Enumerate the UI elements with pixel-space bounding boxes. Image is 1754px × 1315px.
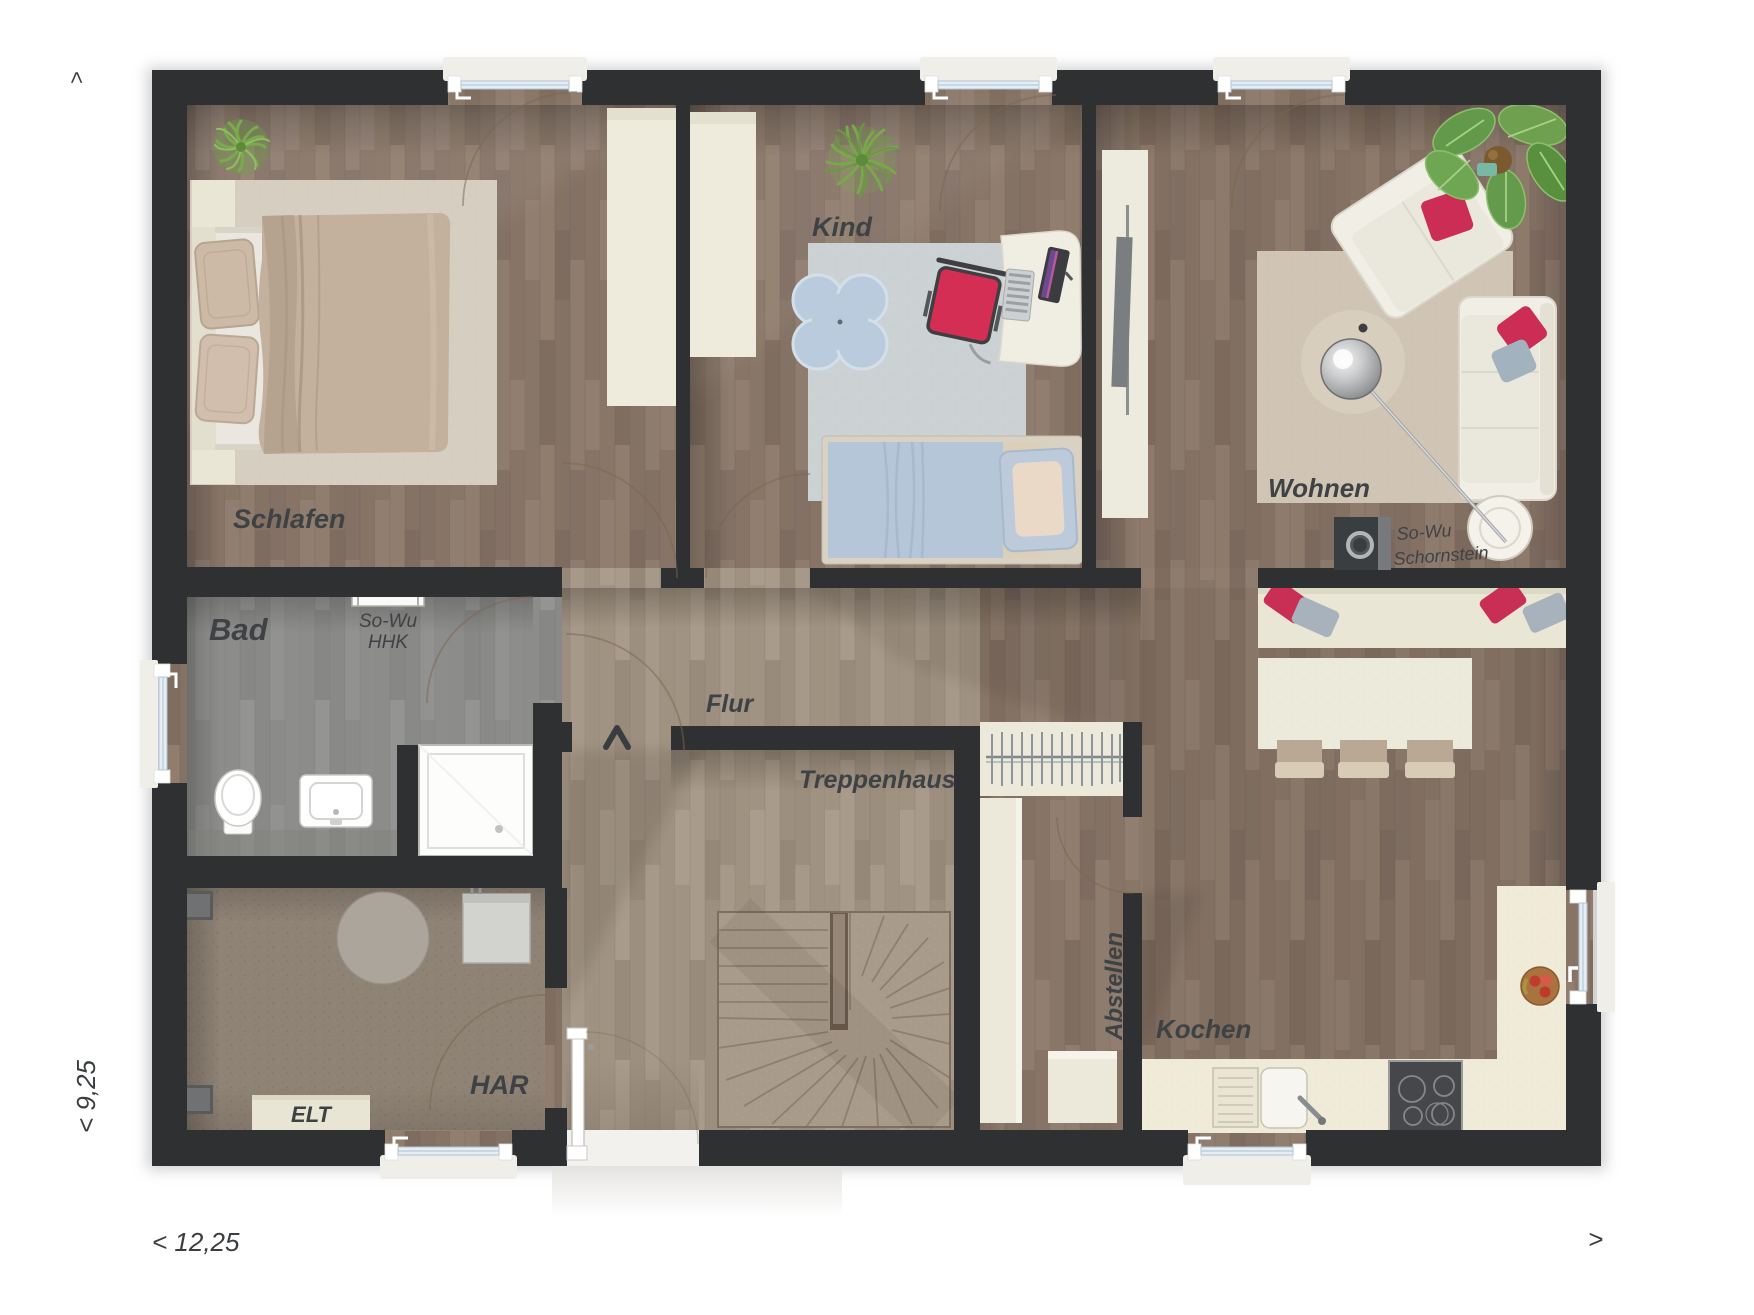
svg-text:Kind: Kind bbox=[812, 212, 872, 242]
svg-text:HAR: HAR bbox=[470, 1070, 529, 1100]
svg-text:< 12,25: < 12,25 bbox=[152, 1227, 240, 1257]
svg-text:Flur: Flur bbox=[706, 690, 754, 718]
svg-text:Abstellen: Abstellen bbox=[1101, 932, 1128, 1041]
svg-text:Schlafen: Schlafen bbox=[233, 504, 346, 534]
svg-text:Treppenhaus: Treppenhaus bbox=[799, 766, 956, 794]
svg-text:So-Wu: So-Wu bbox=[1396, 520, 1452, 544]
svg-text:So-Wu: So-Wu bbox=[359, 611, 418, 632]
svg-text:Bad: Bad bbox=[209, 612, 269, 647]
svg-text:>: > bbox=[1588, 1224, 1603, 1254]
svg-text:Kochen: Kochen bbox=[1156, 1014, 1251, 1044]
svg-text:ELT: ELT bbox=[291, 1102, 332, 1127]
svg-text:Wohnen: Wohnen bbox=[1268, 473, 1370, 503]
svg-text:HHK: HHK bbox=[368, 632, 409, 653]
svg-text:>: > bbox=[64, 71, 89, 84]
svg-text:< 9,25: < 9,25 bbox=[71, 1059, 101, 1133]
